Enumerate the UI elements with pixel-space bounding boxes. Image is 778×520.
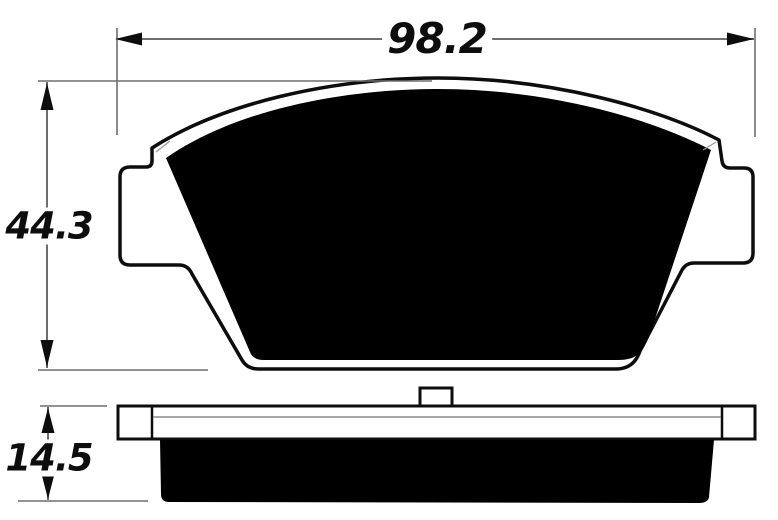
backing-plate-edge [118, 406, 755, 439]
height-arrow-down [41, 340, 54, 367]
thickness-dimension-label: 14.5 [0, 440, 97, 477]
height-arrow-up [41, 83, 54, 110]
friction-material-edge [160, 440, 714, 503]
height-dimension-label: 44.3 [0, 208, 97, 245]
front-view [120, 78, 753, 369]
thickness-arrow-up [42, 408, 55, 433]
width-dimension-label: 98.2 [382, 18, 492, 60]
drawing-canvas [0, 0, 778, 520]
width-arrow-left [115, 33, 142, 46]
width-arrow-right [727, 33, 754, 46]
friction-material-front [166, 89, 711, 360]
wear-tab [420, 388, 452, 407]
brake-pad-technical-drawing: 98.2 44.3 14.5 [0, 0, 778, 520]
edge-view [118, 388, 755, 503]
